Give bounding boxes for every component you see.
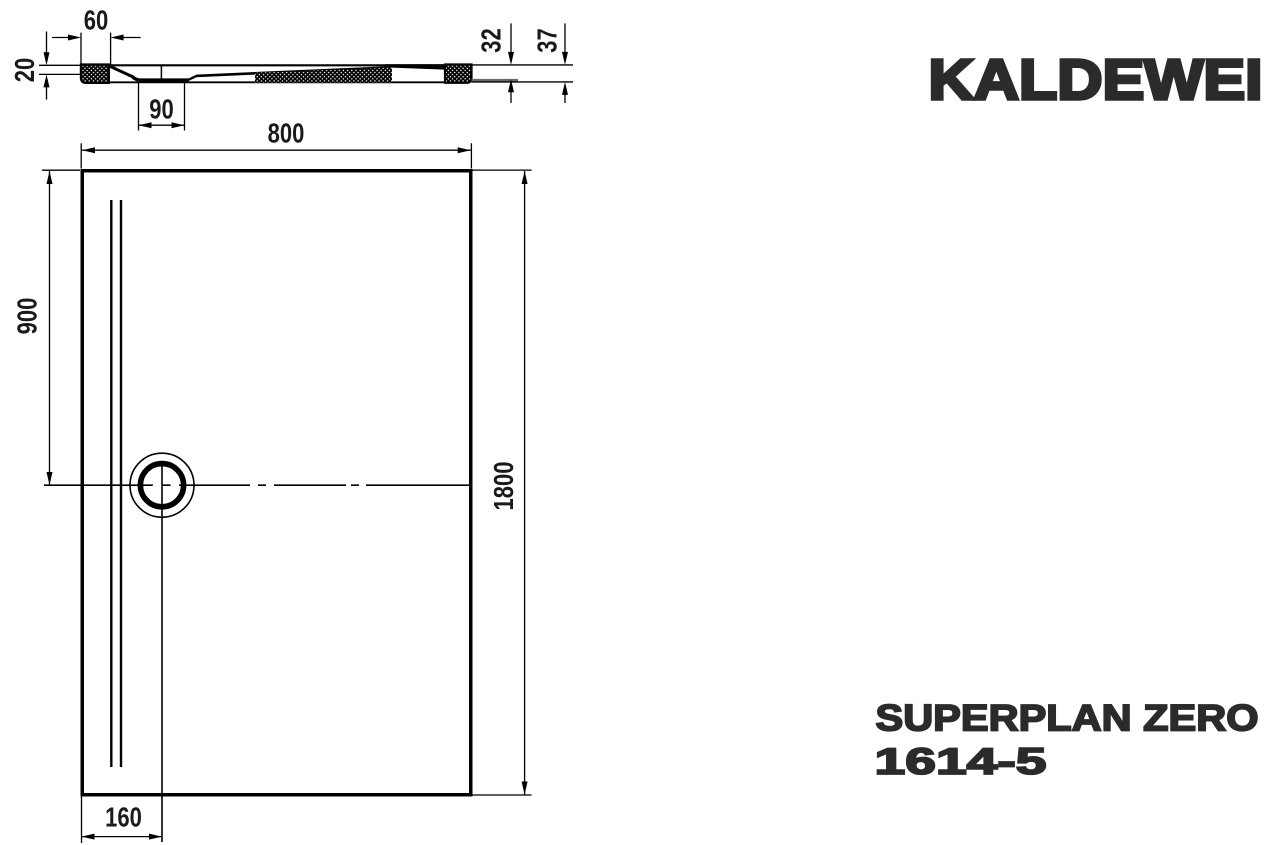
svg-text:1800: 1800: [489, 462, 520, 511]
svg-text:800: 800: [268, 118, 305, 149]
svg-text:37: 37: [532, 28, 563, 52]
svg-text:KALDEWEI: KALDEWEI: [929, 48, 1263, 112]
svg-text:1614-5: 1614-5: [875, 741, 1047, 782]
svg-text:160: 160: [105, 802, 142, 833]
svg-text:SUPERPLAN ZERO: SUPERPLAN ZERO: [876, 698, 1259, 739]
svg-text:60: 60: [84, 5, 108, 36]
svg-text:90: 90: [149, 94, 173, 125]
svg-text:20: 20: [10, 58, 41, 82]
svg-text:32: 32: [476, 28, 507, 52]
svg-text:900: 900: [12, 298, 43, 335]
